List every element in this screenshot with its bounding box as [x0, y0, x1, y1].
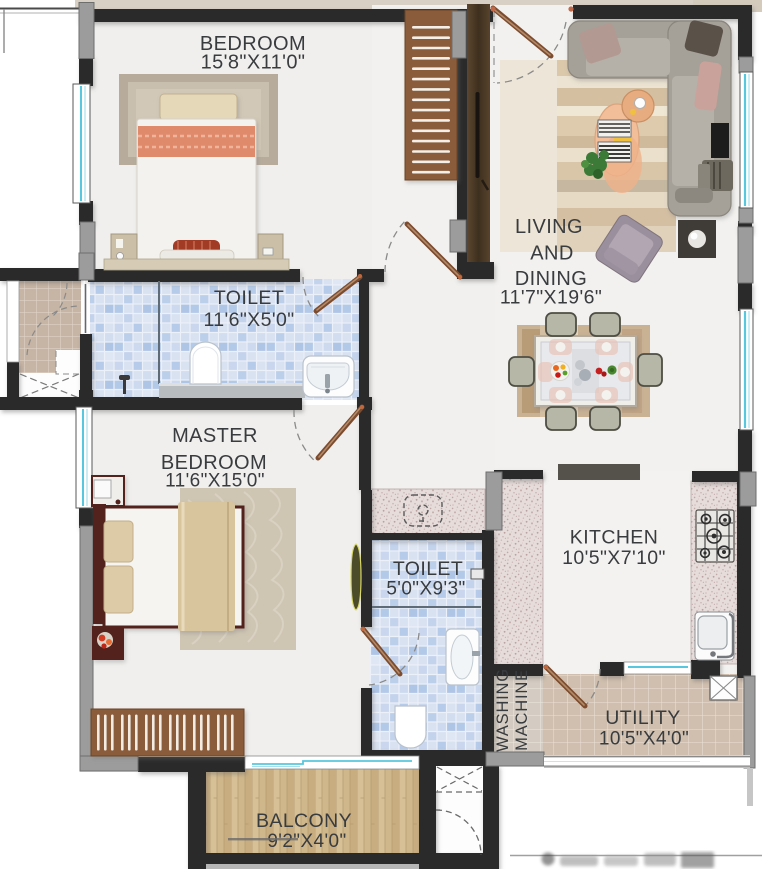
svg-text:MACHINE: MACHINE [513, 669, 531, 751]
svg-text:11'6"X15'0": 11'6"X15'0" [165, 471, 265, 492]
svg-text:MASTER: MASTER [172, 425, 258, 447]
svg-text:10'5"X7'10": 10'5"X7'10" [562, 547, 666, 569]
svg-text:LIVING: LIVING [515, 216, 583, 238]
svg-text:15'8"X11'0": 15'8"X11'0" [201, 52, 306, 74]
svg-text:KITCHEN: KITCHEN [570, 527, 658, 549]
svg-text:WASHING: WASHING [494, 668, 512, 752]
svg-text:UTILITY: UTILITY [605, 707, 680, 729]
svg-text:BALCONY: BALCONY [256, 810, 352, 832]
svg-text:AND: AND [530, 243, 573, 265]
svg-text:9'2"X4'0": 9'2"X4'0" [267, 831, 346, 852]
svg-text:10'5"X4'0": 10'5"X4'0" [599, 729, 689, 750]
svg-text:TOILET: TOILET [214, 287, 284, 309]
svg-text:11'7"X19'6": 11'7"X19'6" [500, 287, 602, 309]
svg-text:TOILET: TOILET [393, 558, 463, 580]
svg-text:11'6"X5'0": 11'6"X5'0" [203, 309, 294, 331]
svg-text:5'0"X9'3": 5'0"X9'3" [386, 579, 465, 600]
